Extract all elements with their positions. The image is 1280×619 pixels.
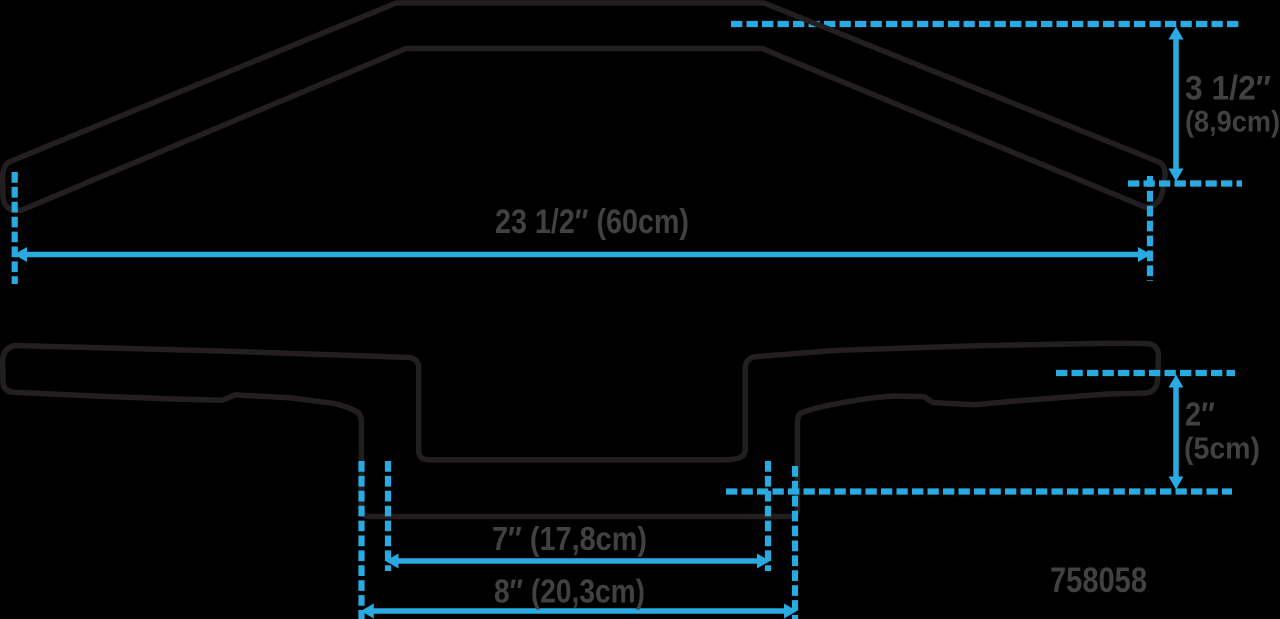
svg-text:(8,9cm): (8,9cm) (1185, 106, 1280, 139)
svg-text:23 1/2″ (60cm): 23 1/2″ (60cm) (495, 203, 689, 241)
svg-text:2″: 2″ (1185, 396, 1215, 433)
svg-text:(5cm): (5cm) (1184, 431, 1260, 466)
svg-text:8″ (20,3cm): 8″ (20,3cm) (494, 573, 645, 610)
svg-text:758058: 758058 (1050, 561, 1147, 600)
svg-text:7″ (17,8cm): 7″ (17,8cm) (492, 520, 647, 557)
svg-text:3 1/2″: 3 1/2″ (1185, 70, 1271, 108)
